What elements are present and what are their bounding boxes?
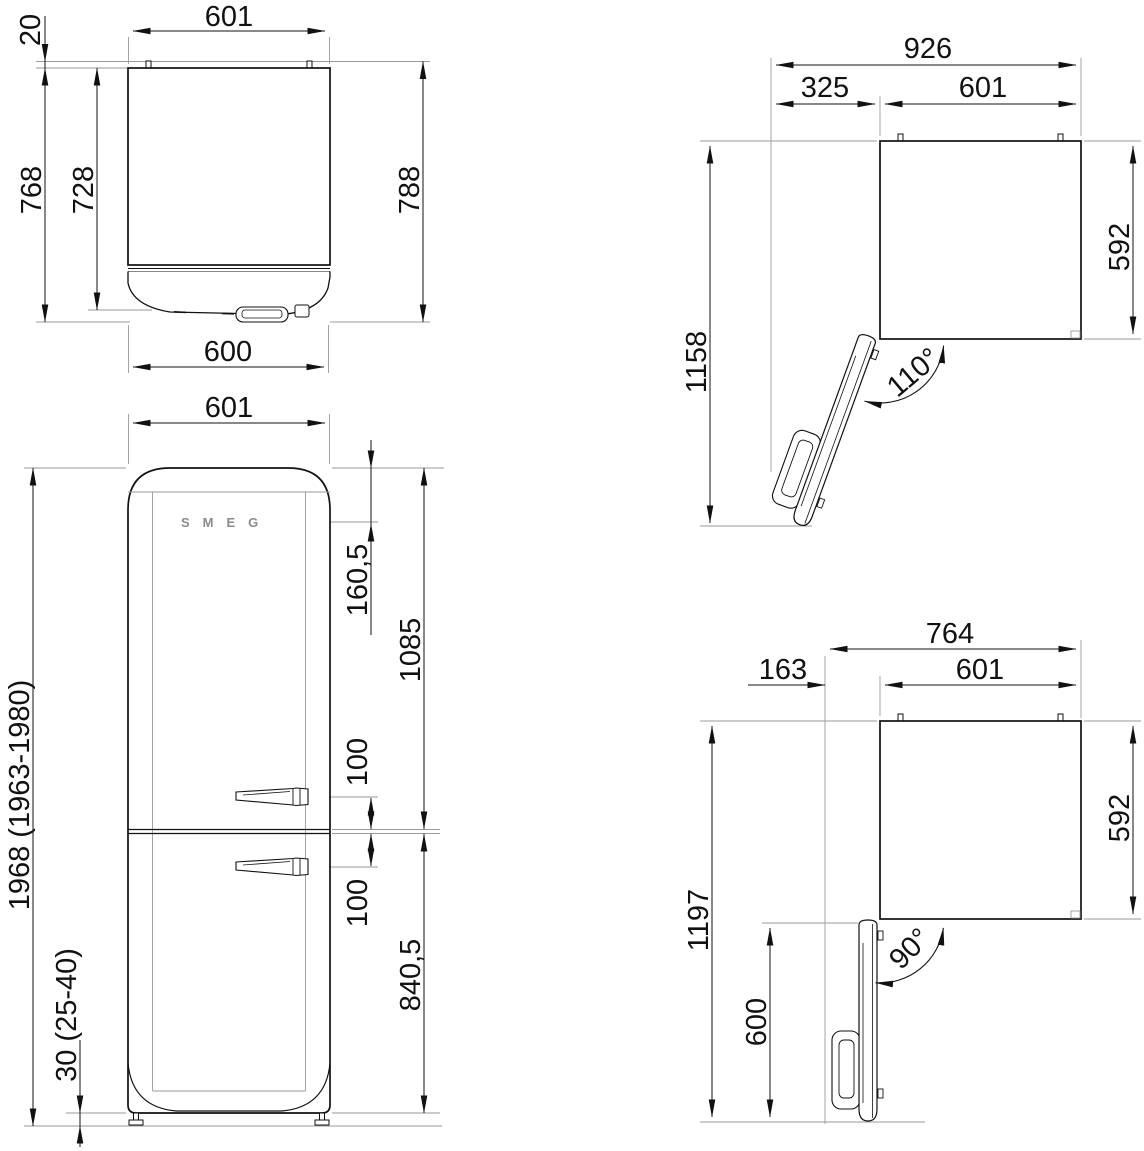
dim-door-clearance-label: 163 <box>759 654 807 686</box>
dim-feet-height-label: 30 (25-40) <box>51 948 83 1082</box>
dim-lower-100-label: 100 <box>342 879 374 927</box>
dim-overall-width-label: 926 <box>904 33 952 65</box>
hinge-pin-right <box>1058 714 1063 721</box>
hinge-pin-right <box>1058 134 1063 141</box>
plan-view-object <box>880 714 1081 919</box>
dim-pin-offset-label: 20 <box>15 14 47 46</box>
door-angle-label: 110° <box>881 342 946 404</box>
foot-left-base <box>129 1120 143 1125</box>
dim-door-swing-label: 325 <box>801 72 849 104</box>
front-view-object: SMEG <box>128 468 330 1125</box>
dim-top-width-label: 601 <box>205 1 253 33</box>
view-top: 601 20 768 728 788 600 <box>15 1 430 373</box>
corner-foot-tick <box>1071 331 1080 338</box>
cabinet-outline <box>128 68 330 265</box>
foot-right-base <box>315 1120 329 1125</box>
view-plan-open-110: 926 325 601 1158 592 110° <box>681 33 1141 530</box>
plan-view-object <box>880 134 1081 339</box>
hinge-pin-left <box>898 714 903 721</box>
dim-body-depth-label: 592 <box>1104 794 1136 842</box>
hinge-pin-left <box>898 134 903 141</box>
foot-left-stem <box>134 1113 139 1120</box>
handle-mount-top-view <box>295 305 309 317</box>
dim-overall-height-label: 1968 (1963-1980) <box>4 680 36 911</box>
dim-door-width-label: 600 <box>204 336 252 368</box>
corner-foot-tick <box>1071 911 1080 918</box>
dim-upper-100-label: 100 <box>342 738 374 786</box>
dim-logo-offset-label: 160,5 <box>342 544 374 617</box>
dim-top-section-label: 1085 <box>395 618 427 683</box>
dim-overall-depth-label: 1197 <box>683 889 715 951</box>
dim-bottom-section-label: 840,5 <box>395 939 427 1012</box>
dim-depth-body-label: 728 <box>68 166 100 214</box>
dim-width-label: 601 <box>959 72 1007 104</box>
dim-body-depth-label: 592 <box>1104 223 1136 271</box>
view-front: SMEG 601 160,5 1085 100 100 840,5 1968 (… <box>4 392 444 1147</box>
dim-width-label: 601 <box>956 654 1004 686</box>
dim-overall-width-label: 764 <box>926 618 974 650</box>
technical-drawing: 601 20 768 728 788 600 <box>0 0 1144 1151</box>
top-view-object <box>128 61 330 322</box>
view-plan-open-90: 764 163 601 1197 592 600 90° <box>683 618 1141 1124</box>
door-angle-label: 90° <box>883 922 937 976</box>
technical-drawing-page: 601 20 768 728 788 600 <box>0 0 1144 1151</box>
hinge-pin-right <box>307 61 312 68</box>
foot-right-stem <box>320 1113 325 1120</box>
dim-overall-depth-label: 1158 <box>681 331 713 393</box>
brand-logo: SMEG <box>181 515 271 530</box>
cabinet-outline <box>880 141 1081 339</box>
dim-front-width-label: 601 <box>205 392 253 424</box>
adjustable-feet <box>129 1113 329 1125</box>
cabinet-outline <box>880 721 1081 919</box>
dim-depth-total-label: 788 <box>394 166 426 214</box>
handle-top-view-inner <box>242 310 282 318</box>
hinge-pin-left <box>146 61 151 68</box>
dim-door-depth-label: 600 <box>741 998 773 1046</box>
door-face-tick <box>174 312 186 313</box>
dim-depth-with-door-label: 768 <box>16 166 48 214</box>
